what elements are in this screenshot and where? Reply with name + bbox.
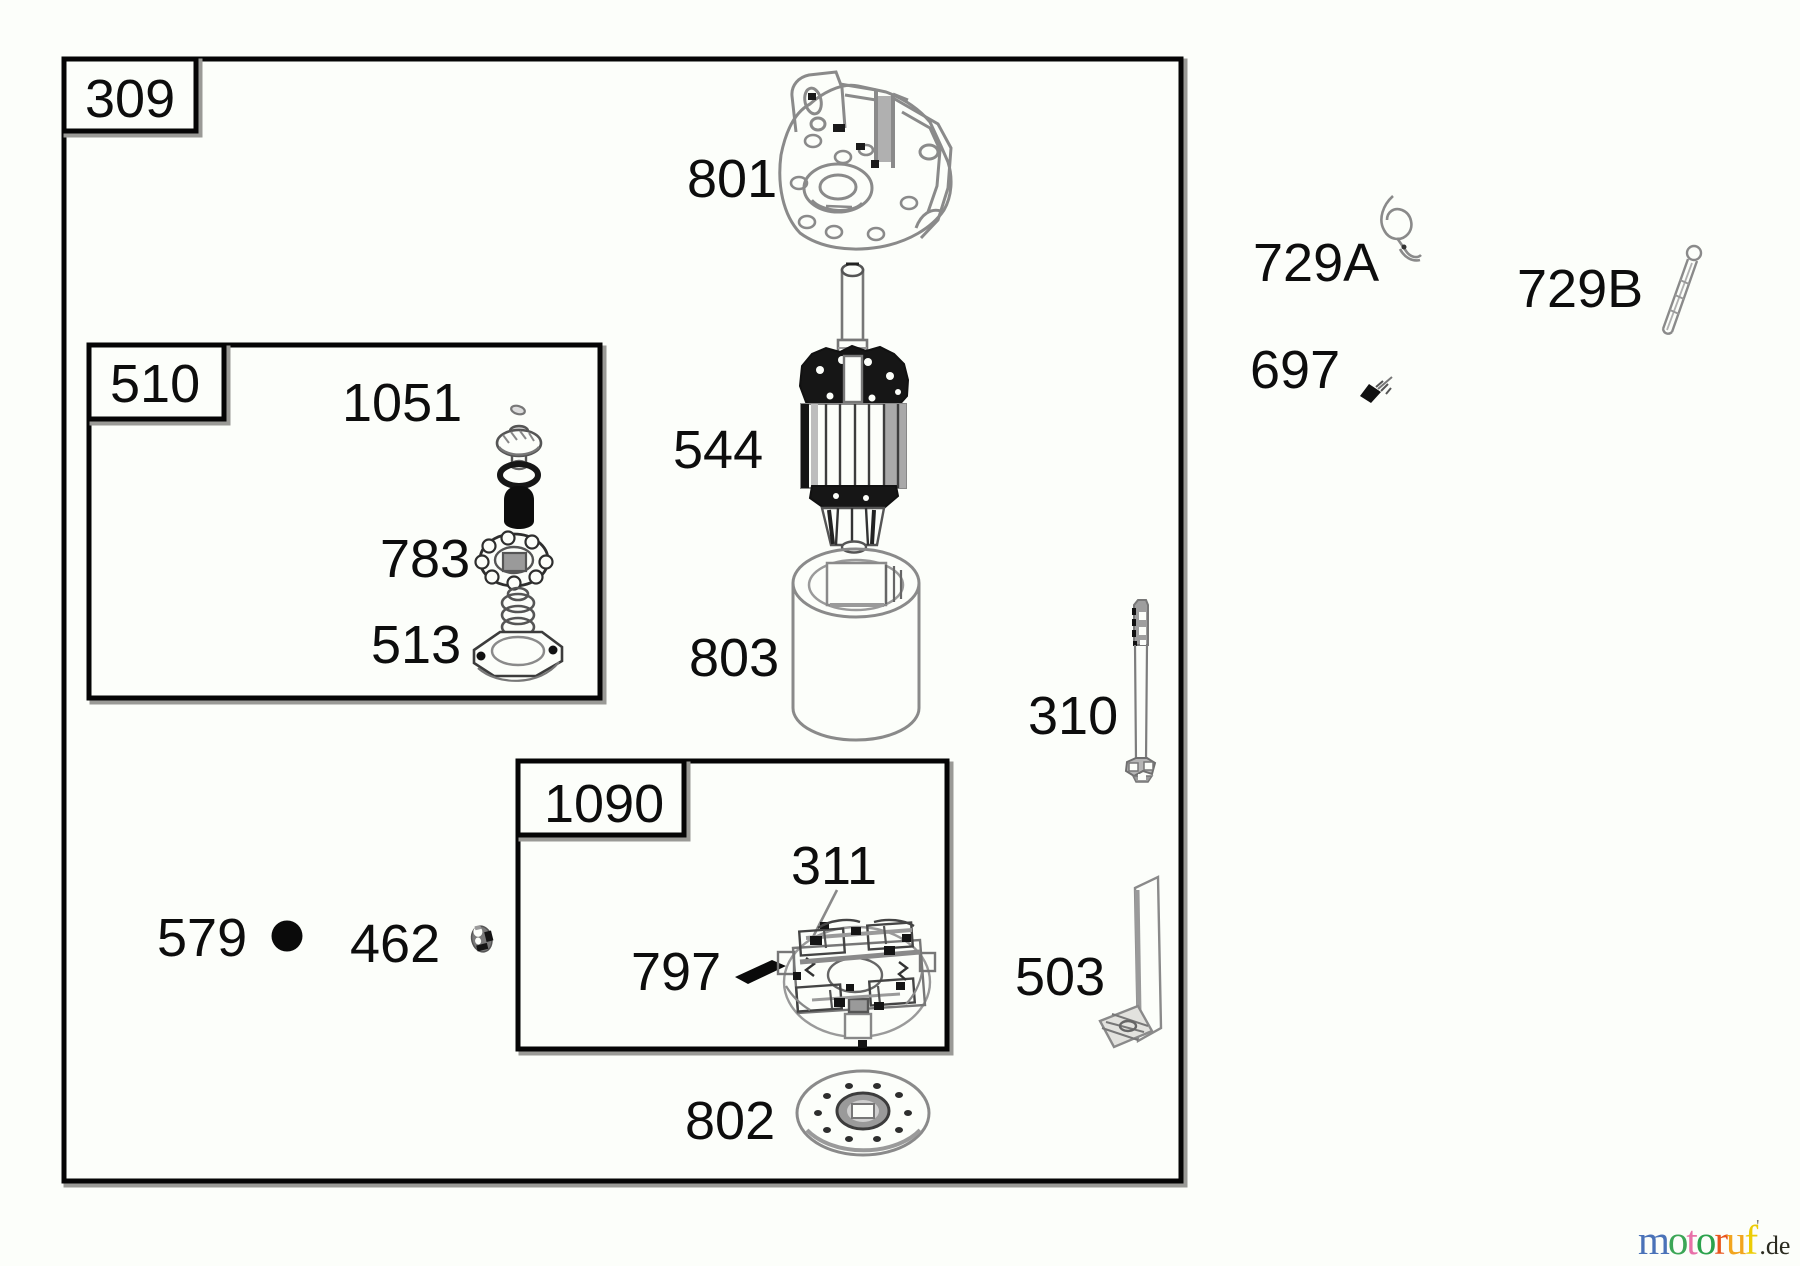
svg-text:309: 309 [85, 69, 175, 129]
svg-text:503: 503 [1015, 947, 1105, 1007]
svg-text:544: 544 [673, 420, 763, 480]
svg-text:797: 797 [631, 942, 721, 1002]
svg-text:783: 783 [380, 529, 470, 589]
svg-text:310: 310 [1028, 686, 1118, 746]
svg-text:1090: 1090 [544, 774, 664, 834]
svg-text:579: 579 [157, 908, 247, 968]
svg-text:510: 510 [110, 354, 200, 414]
svg-text:462: 462 [350, 914, 440, 974]
svg-text:1051: 1051 [342, 373, 462, 433]
svg-text:729B: 729B [1517, 259, 1643, 319]
svg-text:729A: 729A [1253, 233, 1379, 293]
svg-text:801: 801 [687, 149, 777, 209]
svg-text:513: 513 [371, 615, 461, 675]
svg-text:697: 697 [1250, 340, 1340, 400]
svg-text:802: 802 [685, 1091, 775, 1151]
svg-text:311: 311 [791, 836, 877, 896]
svg-text:803: 803 [689, 628, 779, 688]
